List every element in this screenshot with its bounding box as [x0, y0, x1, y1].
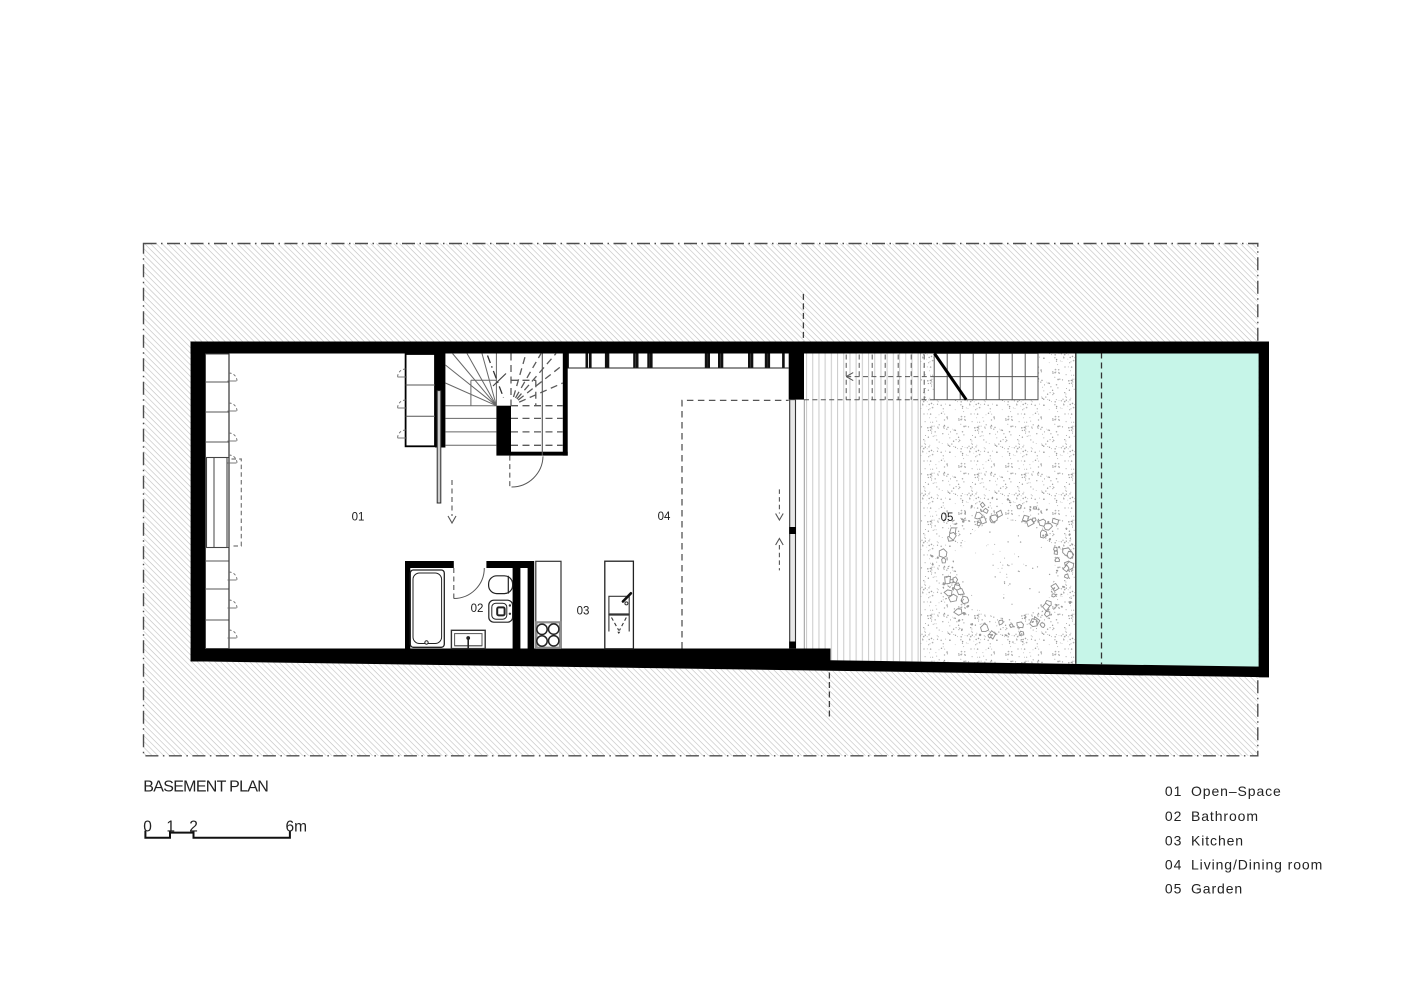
svg-text:Open–Space: Open–Space [1191, 783, 1282, 799]
svg-text:02: 02 [471, 603, 484, 615]
svg-text:0: 0 [143, 818, 152, 835]
svg-text:1: 1 [166, 818, 175, 835]
svg-text:03: 03 [1165, 832, 1182, 848]
svg-text:05: 05 [1165, 881, 1182, 897]
svg-text:02: 02 [1165, 808, 1182, 824]
svg-text:6m: 6m [286, 818, 308, 835]
svg-text:05: 05 [941, 512, 954, 524]
svg-text:Kitchen: Kitchen [1191, 832, 1244, 848]
svg-text:01: 01 [352, 512, 365, 524]
svg-text:04: 04 [658, 511, 671, 523]
svg-text:Living/Dining room: Living/Dining room [1191, 857, 1323, 873]
svg-text:BASEMENT PLAN: BASEMENT PLAN [143, 779, 268, 796]
svg-text:Bathroom: Bathroom [1191, 808, 1259, 824]
svg-text:Garden: Garden [1191, 881, 1243, 897]
svg-text:01: 01 [1165, 783, 1182, 799]
svg-text:03: 03 [577, 606, 590, 618]
svg-text:04: 04 [1165, 857, 1182, 873]
svg-text:2: 2 [189, 818, 198, 835]
